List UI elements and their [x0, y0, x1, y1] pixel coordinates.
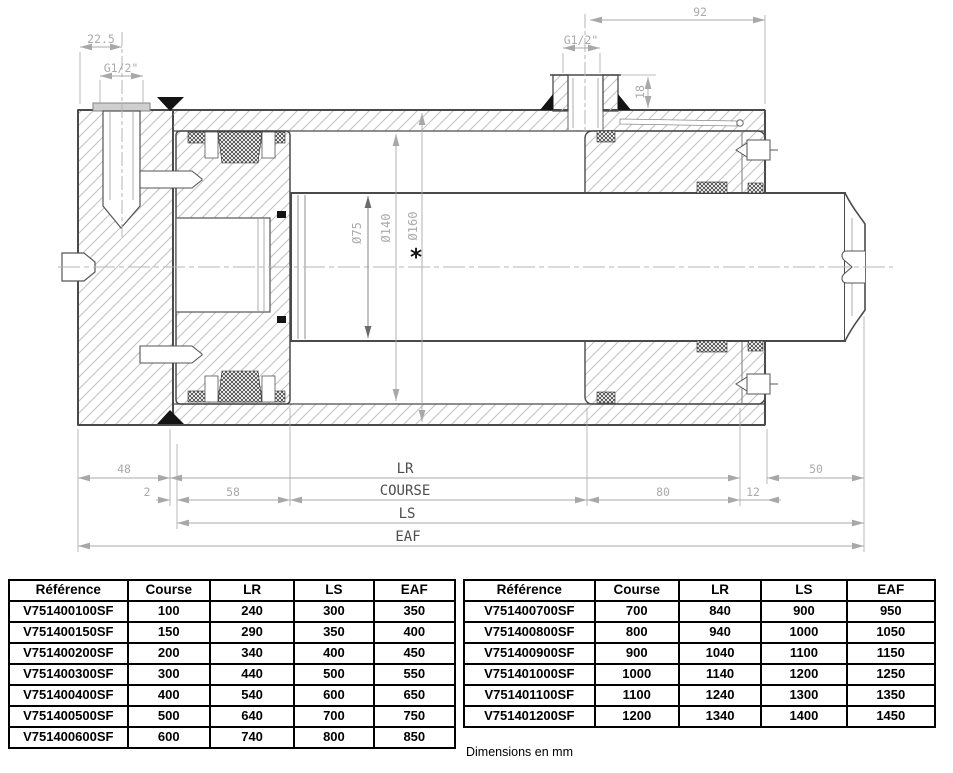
column-header: Référence — [464, 580, 595, 601]
table-cell: 1140 — [679, 664, 761, 685]
table-row: V751401100SF1100124013001350 — [464, 685, 935, 706]
units-note: Dimensions en mm — [466, 745, 573, 759]
table-cell: 500 — [294, 664, 373, 685]
table-cell: 1050 — [847, 622, 935, 643]
table-cell: 600 — [128, 727, 210, 748]
lr-label: LR — [397, 461, 414, 477]
table-cell: 300 — [128, 664, 210, 685]
technical-drawing: 22.5 G1/2" 92 G1/2" 18 Ø75 Ø140 Ø160 * 4… — [0, 0, 953, 575]
table-cell: 1000 — [761, 622, 846, 643]
table-cell: 950 — [847, 601, 935, 622]
column-header: Course — [595, 580, 679, 601]
table-cell: 850 — [374, 727, 455, 748]
table-row: V751400900SF900104011001150 — [464, 643, 935, 664]
table-cell: V751400200SF — [9, 643, 128, 664]
table-cell: 340 — [210, 643, 294, 664]
table-cell: 290 — [210, 622, 294, 643]
table-cell: 1340 — [679, 706, 761, 727]
table-cell: 500 — [128, 706, 210, 727]
table-cell: V751400300SF — [9, 664, 128, 685]
dim-58-label: 58 — [226, 485, 240, 499]
table-cell: V751401100SF — [464, 685, 595, 706]
dim-12-label: 12 — [746, 485, 760, 499]
table-cell: V751400600SF — [9, 727, 128, 748]
table-cell: 800 — [595, 622, 679, 643]
table-row: V751400150SF150290350400 — [9, 622, 455, 643]
dim-50-label: 50 — [809, 462, 823, 476]
table-cell: V751400700SF — [464, 601, 595, 622]
column-header: Référence — [9, 580, 128, 601]
spec-table-right: RéférenceCourseLRLSEAFV751400700SF700840… — [463, 579, 936, 728]
weld-triangle-top — [157, 97, 184, 111]
table-cell: 1100 — [595, 685, 679, 706]
table-cell: 150 — [128, 622, 210, 643]
table-cell: 800 — [294, 727, 373, 748]
table-cell: V751400100SF — [9, 601, 128, 622]
table-cell: 1150 — [847, 643, 935, 664]
table-cell: 200 — [128, 643, 210, 664]
cushion-pin — [140, 171, 202, 188]
table-row: V751400400SF400540600650 — [9, 685, 455, 706]
table-row: V751400500SF500640700750 — [9, 706, 455, 727]
table-cell: 900 — [761, 601, 846, 622]
table-cell: 700 — [595, 601, 679, 622]
table-cell: 700 — [294, 706, 373, 727]
table-cell: V751401200SF — [464, 706, 595, 727]
port-thread-label-left: G1/2" — [104, 61, 139, 75]
table-cell: 740 — [210, 727, 294, 748]
header-row: RéférenceCourseLRLSEAF — [464, 580, 935, 601]
table-row: V751401200SF1200134014001450 — [464, 706, 935, 727]
table-cell: 1250 — [847, 664, 935, 685]
column-header: LS — [294, 580, 373, 601]
dia-140-label: Ø140 — [379, 214, 393, 243]
dia-75-label: Ø75 — [350, 222, 364, 244]
table-cell: 440 — [210, 664, 294, 685]
weld-boss-right — [618, 94, 631, 110]
column-header: EAF — [374, 580, 455, 601]
passage-port — [737, 120, 743, 126]
table-cell: 450 — [374, 643, 455, 664]
table-cell: 400 — [374, 622, 455, 643]
table-cell: 1200 — [595, 706, 679, 727]
dim-48-label: 48 — [117, 462, 131, 476]
table-cell: 1100 — [761, 643, 846, 664]
table-row: V751400300SF300440500550 — [9, 664, 455, 685]
table-cell: 400 — [128, 685, 210, 706]
table-cell: 350 — [374, 601, 455, 622]
table-row: V751400700SF700840900950 — [464, 601, 935, 622]
table-cell: 1240 — [679, 685, 761, 706]
table-cell: 1040 — [679, 643, 761, 664]
table-cell: 1450 — [847, 706, 935, 727]
dia-160-label: Ø160 — [406, 212, 420, 241]
column-header: EAF — [847, 580, 935, 601]
course-label: COURSE — [380, 483, 431, 499]
column-header: LR — [679, 580, 761, 601]
table-cell: V751400900SF — [464, 643, 595, 664]
table-cell: 1000 — [595, 664, 679, 685]
table-cell: 100 — [128, 601, 210, 622]
dim-92-label: 92 — [693, 5, 707, 19]
table-cell: 750 — [374, 706, 455, 727]
table-cell: 1400 — [761, 706, 846, 727]
table-row: V751400600SF600740800850 — [9, 727, 455, 748]
table-cell: 1300 — [761, 685, 846, 706]
table-row: V751401000SF1000114012001250 — [464, 664, 935, 685]
dim-18-label: 18 — [633, 85, 647, 99]
spec-table-left: RéférenceCourseLRLSEAFV751400100SF100240… — [8, 579, 456, 749]
table-cell: V751400500SF — [9, 706, 128, 727]
header-row: RéférenceCourseLRLSEAF — [9, 580, 455, 601]
table-cell: 400 — [294, 643, 373, 664]
table-cell: 1350 — [847, 685, 935, 706]
asterisk-note: * — [410, 245, 422, 271]
table-row: V751400100SF100240300350 — [9, 601, 455, 622]
column-header: LR — [210, 580, 294, 601]
column-header: Course — [128, 580, 210, 601]
dim-80-label: 80 — [656, 485, 670, 499]
weld-boss-left — [540, 94, 553, 110]
ls-label: LS — [399, 506, 416, 522]
table-cell: V751400400SF — [9, 685, 128, 706]
table-cell: 350 — [294, 622, 373, 643]
dim-22-5-label: 22.5 — [87, 32, 115, 46]
dim-2-label: 2 — [144, 485, 151, 499]
table-cell: 940 — [679, 622, 761, 643]
table-cell: 300 — [294, 601, 373, 622]
table-cell: V751400800SF — [464, 622, 595, 643]
set-screw — [747, 140, 770, 160]
table-cell: V751401000SF — [464, 664, 595, 685]
column-header: LS — [761, 580, 846, 601]
table-cell: 840 — [679, 601, 761, 622]
table-cell: 640 — [210, 706, 294, 727]
port-thread-label-top: G1/2" — [564, 33, 599, 47]
table-row: V751400800SF80094010001050 — [464, 622, 935, 643]
table-cell: 550 — [374, 664, 455, 685]
table-cell: 540 — [210, 685, 294, 706]
table-cell: 1200 — [761, 664, 846, 685]
table-cell: 900 — [595, 643, 679, 664]
eaf-label: EAF — [395, 529, 420, 545]
piston-recess — [176, 218, 270, 312]
table-cell: 650 — [374, 685, 455, 706]
table-cell: V751400150SF — [9, 622, 128, 643]
table-cell: 240 — [210, 601, 294, 622]
table-row: V751400200SF200340400450 — [9, 643, 455, 664]
table-cell: 600 — [294, 685, 373, 706]
